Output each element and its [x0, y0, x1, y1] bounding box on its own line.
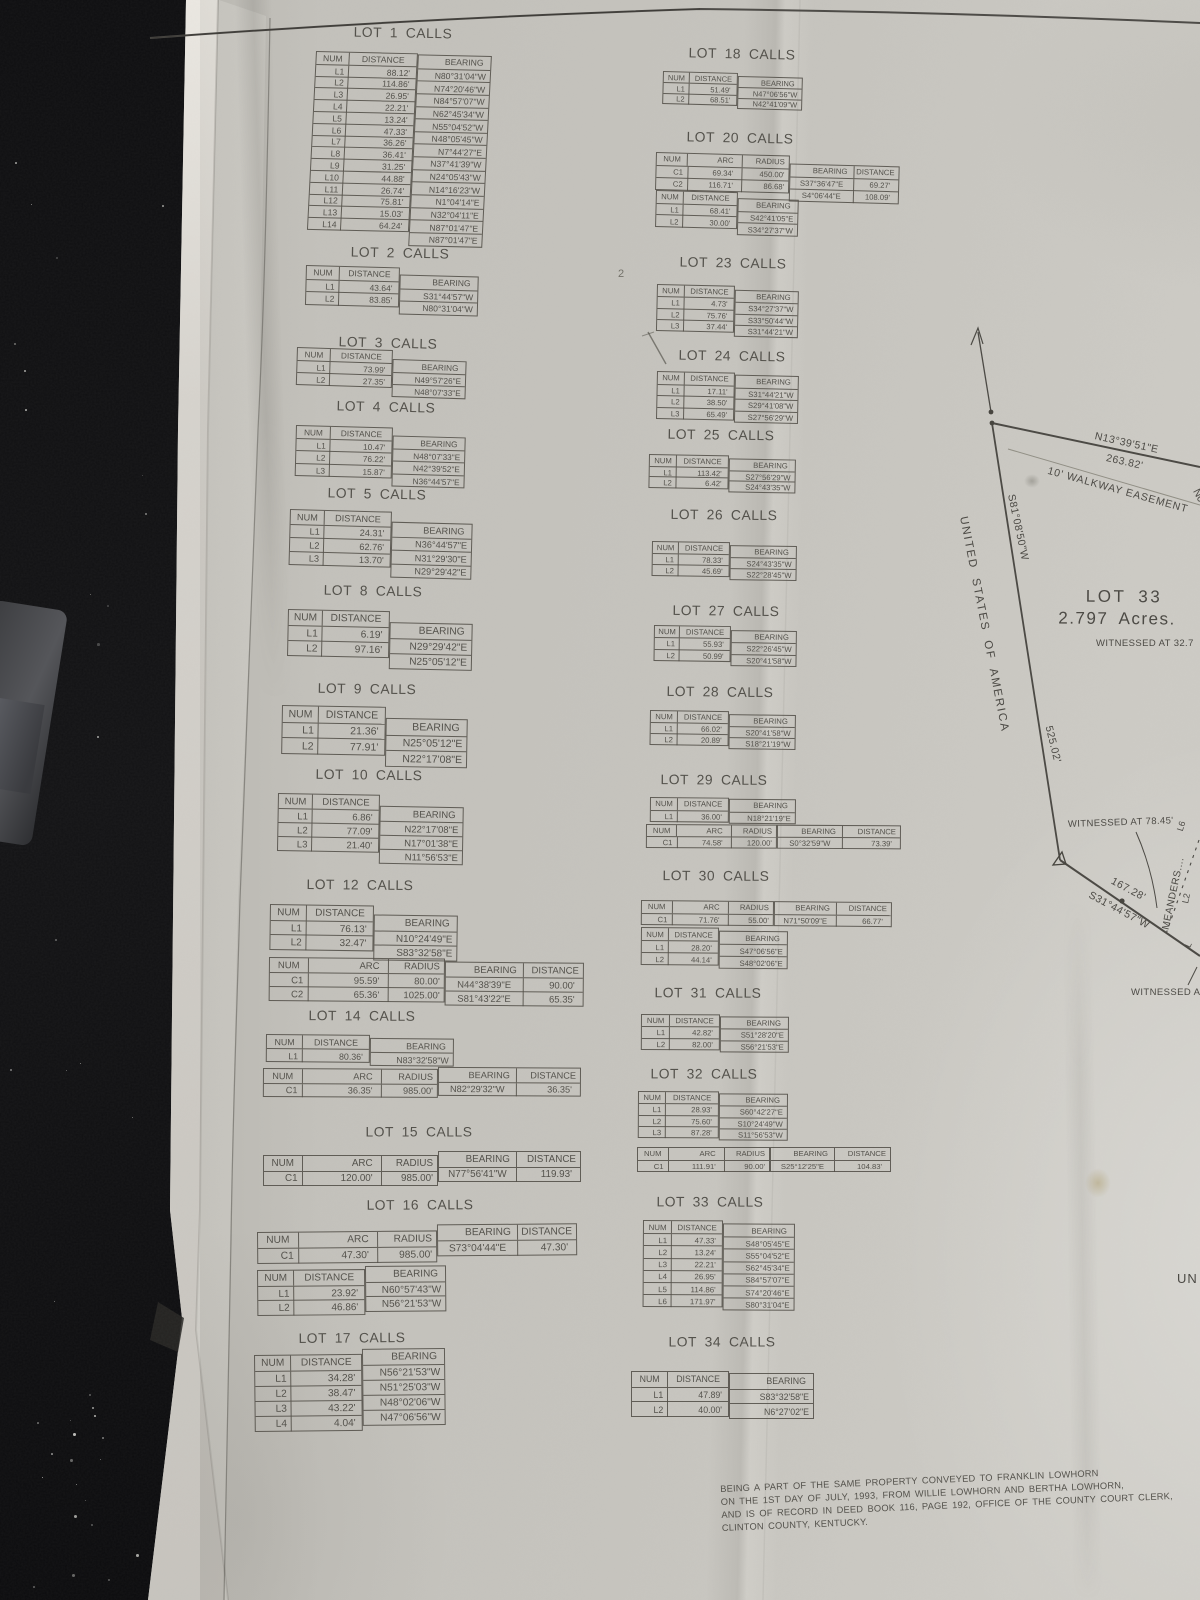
svg-text:WITNESSED AT 32.7: WITNESSED AT 32.7: [1096, 638, 1194, 649]
svg-text:LOT 33: LOT 33: [1086, 587, 1163, 607]
svg-text:263.82': 263.82': [1105, 452, 1144, 472]
svg-text:WITNESSED AT 78.45': WITNESSED AT 78.45': [1068, 815, 1174, 830]
svg-text:525.02': 525.02': [1043, 725, 1064, 764]
svg-text:L: L: [1183, 940, 1194, 949]
svg-text:UN: UN: [1177, 1271, 1198, 1286]
svg-text:L2: L2: [1180, 892, 1192, 904]
svg-text:10' WALKWAY EASEMENT: 10' WALKWAY EASEMENT: [1046, 465, 1189, 515]
svg-text:167.28': 167.28': [1109, 875, 1148, 903]
svg-text:L6: L6: [1175, 820, 1188, 833]
svg-text:WITNESSED A: WITNESSED A: [1131, 987, 1200, 998]
svg-text:N0: N0: [1190, 487, 1200, 505]
svg-text:2.797 Acres.: 2.797 Acres.: [1058, 608, 1176, 628]
svg-text:UNITED STATES OF AMERICA: UNITED STATES OF AMERICA: [957, 515, 1011, 733]
